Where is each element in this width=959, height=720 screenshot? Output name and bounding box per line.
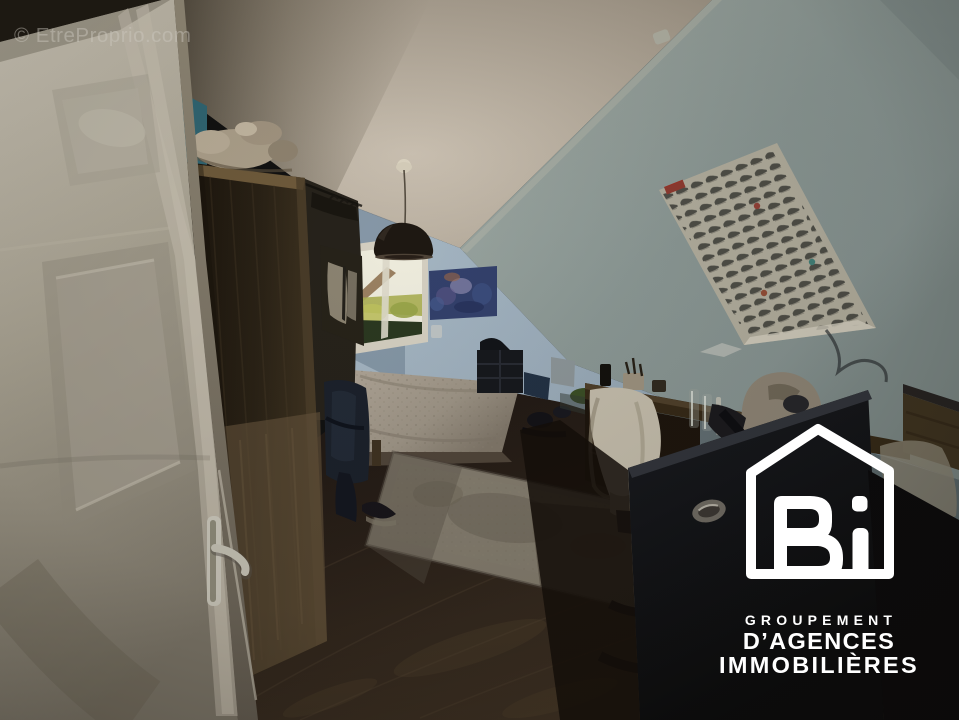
svg-text:IMMOBILIÈRES: IMMOBILIÈRES — [719, 651, 919, 678]
svg-text:GROUPEMENT: GROUPEMENT — [745, 612, 897, 628]
svg-text:© EtreProprio.com: © EtreProprio.com — [14, 24, 191, 47]
svg-text:D’AGENCES: D’AGENCES — [743, 628, 895, 654]
